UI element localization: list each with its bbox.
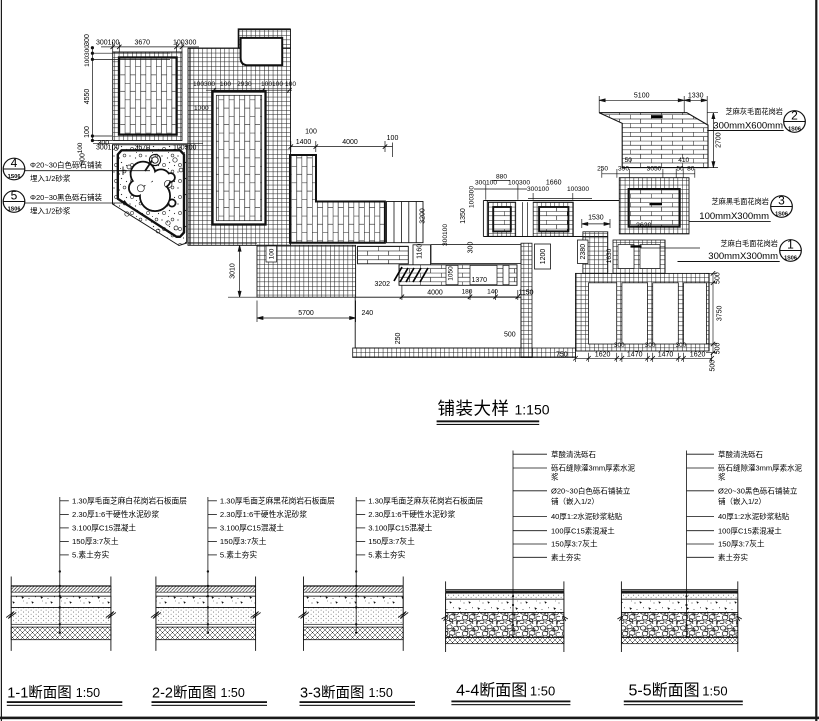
- svg-text:300: 300: [645, 342, 656, 349]
- svg-text:150厚3:7灰土: 150厚3:7灰土: [368, 536, 415, 546]
- svg-text:300100: 300100: [527, 186, 549, 193]
- svg-text:3670: 3670: [135, 145, 151, 152]
- svg-text:1S06: 1S06: [775, 211, 788, 217]
- svg-text:500: 500: [710, 360, 717, 372]
- svg-text:3-3断面图: 3-3断面图: [300, 685, 364, 702]
- svg-text:5.素土夯实: 5.素土夯实: [368, 550, 405, 560]
- svg-text:410: 410: [678, 157, 689, 164]
- svg-text:1000: 1000: [194, 105, 209, 112]
- svg-text:100300: 100300: [173, 145, 196, 152]
- svg-text:40厚1:2水泥砂浆粘贴: 40厚1:2水泥砂浆粘贴: [551, 511, 623, 521]
- svg-text:250: 250: [597, 166, 608, 173]
- svg-text:Ø20~30黑色砾石铺装立: Ø20~30黑色砾石铺装立: [718, 485, 798, 495]
- svg-text:1-1断面图: 1-1断面图: [7, 685, 71, 702]
- svg-text:240: 240: [362, 310, 374, 317]
- svg-text:5: 5: [11, 188, 18, 202]
- svg-text:2-2断面图: 2-2断面图: [152, 685, 216, 702]
- svg-text:80: 80: [687, 166, 695, 173]
- svg-text:300: 300: [614, 342, 625, 349]
- svg-text:100100: 100100: [261, 81, 283, 88]
- svg-text:4: 4: [11, 156, 18, 170]
- svg-text:砾石缝隙灌3mm厚素水泥: 砾石缝隙灌3mm厚素水泥: [718, 463, 803, 473]
- svg-text:芝麻灰毛面花岗岩: 芝麻灰毛面花岗岩: [725, 107, 783, 116]
- svg-text:3.100厚C15混凝土: 3.100厚C15混凝土: [368, 523, 432, 533]
- svg-text:500: 500: [715, 342, 722, 354]
- svg-text:埋入1/2砂浆: 埋入1/2砂浆: [30, 173, 71, 183]
- svg-text:100: 100: [305, 129, 317, 136]
- svg-text:草酸清洗砾石: 草酸清洗砾石: [718, 449, 763, 459]
- svg-text:1620: 1620: [690, 351, 706, 358]
- svg-text:Φ20~30白色砾石铺装: Φ20~30白色砾石铺装: [30, 160, 103, 170]
- svg-text:5700: 5700: [298, 310, 314, 317]
- svg-text:砾石缝隙灌3mm厚素水泥: 砾石缝隙灌3mm厚素水泥: [551, 463, 636, 473]
- svg-text:300mmX600mm: 300mmX600mm: [713, 120, 783, 131]
- svg-text:埋入1/2砂浆: 埋入1/2砂浆: [30, 205, 71, 215]
- svg-text:3.100厚C15混凝土: 3.100厚C15混凝土: [72, 523, 136, 533]
- svg-text:1350: 1350: [460, 208, 467, 224]
- svg-text:300100: 300100: [475, 180, 497, 187]
- svg-text:100300: 100300: [567, 186, 589, 193]
- svg-text:140: 140: [487, 289, 498, 296]
- svg-text:2.30厚1:6干硬性水泥砂浆: 2.30厚1:6干硬性水泥砂浆: [368, 509, 455, 519]
- svg-text:100300: 100300: [193, 81, 215, 88]
- svg-text:300: 300: [676, 342, 687, 349]
- svg-text:铺（嵌入1/2）: 铺（嵌入1/2）: [551, 496, 599, 506]
- svg-text:150厚3:7灰土: 150厚3:7灰土: [72, 536, 119, 546]
- svg-text:3670: 3670: [135, 39, 151, 46]
- svg-text:300: 300: [84, 34, 91, 46]
- svg-text:2: 2: [791, 108, 798, 122]
- svg-text:1470: 1470: [658, 351, 674, 358]
- svg-text:100: 100: [84, 126, 91, 138]
- svg-text:浆: 浆: [718, 472, 726, 482]
- svg-text:素土夯实: 素土夯实: [551, 552, 581, 562]
- svg-text:3202: 3202: [375, 281, 391, 288]
- svg-text:1:50: 1:50: [369, 686, 393, 700]
- svg-text:素土夯实: 素土夯实: [718, 552, 748, 562]
- svg-text:150厚3:7灰土: 150厚3:7灰土: [551, 539, 598, 549]
- svg-text:1S06: 1S06: [8, 174, 21, 180]
- svg-text:1200: 1200: [540, 249, 547, 265]
- svg-text:1050: 1050: [448, 266, 455, 281]
- svg-text:4000: 4000: [342, 139, 358, 146]
- svg-text:180: 180: [462, 289, 473, 296]
- svg-text:4000: 4000: [427, 289, 443, 296]
- svg-text:3.100厚C15混凝土: 3.100厚C15混凝土: [220, 523, 284, 533]
- svg-text:1160: 1160: [417, 244, 424, 259]
- svg-text:1:50: 1:50: [221, 686, 245, 700]
- svg-text:300mmX300mm: 300mmX300mm: [708, 251, 778, 262]
- svg-text:草酸清洗砾石: 草酸清洗砾石: [551, 449, 596, 459]
- svg-text:2700: 2700: [716, 132, 723, 148]
- svg-text:1S06: 1S06: [8, 206, 21, 212]
- svg-text:3750: 3750: [717, 306, 724, 322]
- svg-text:150厚3:7灰土: 150厚3:7灰土: [220, 536, 267, 546]
- svg-text:100: 100: [269, 248, 276, 259]
- svg-text:500: 500: [715, 272, 722, 284]
- svg-text:2.30厚1:6干硬性水泥砂浆: 2.30厚1:6干硬性水泥砂浆: [220, 509, 307, 519]
- svg-text:Φ20~30黑色砾石铺装: Φ20~30黑色砾石铺装: [30, 192, 103, 202]
- svg-text:1330: 1330: [688, 93, 704, 100]
- svg-text:1:50: 1:50: [702, 684, 727, 699]
- svg-text:1630: 1630: [606, 248, 613, 263]
- svg-text:390: 390: [618, 166, 629, 173]
- svg-text:芝麻黑毛面花岗岩: 芝麻黑毛面花岗岩: [711, 197, 769, 206]
- svg-text:1:50: 1:50: [530, 684, 555, 699]
- svg-text:1: 1: [787, 237, 794, 251]
- svg-text:40厚1:2水泥砂浆粘贴: 40厚1:2水泥砂浆粘贴: [718, 511, 790, 521]
- svg-text:100300: 100300: [173, 39, 196, 46]
- svg-text:300100: 300100: [96, 39, 119, 46]
- svg-text:2380: 2380: [580, 244, 587, 260]
- svg-text:880: 880: [496, 174, 507, 181]
- svg-text:5.素土夯实: 5.素土夯实: [72, 550, 109, 560]
- svg-text:50: 50: [625, 157, 633, 164]
- svg-text:5.素土夯实: 5.素土夯实: [220, 550, 257, 560]
- svg-text:1S06: 1S06: [784, 255, 797, 261]
- svg-text:1530: 1530: [588, 214, 604, 221]
- svg-text:1:50: 1:50: [76, 686, 100, 700]
- svg-text:1150: 1150: [519, 289, 534, 296]
- svg-text:浆: 浆: [551, 472, 559, 482]
- svg-text:4-4断面图: 4-4断面图: [456, 682, 527, 700]
- svg-text:150厚3:7灰土: 150厚3:7灰土: [718, 539, 765, 549]
- svg-text:300: 300: [468, 242, 475, 254]
- svg-text:4550: 4550: [84, 89, 91, 105]
- svg-text:铺（嵌入1/2）: 铺（嵌入1/2）: [718, 496, 766, 506]
- svg-text:2.30厚1:6干硬性水泥砂浆: 2.30厚1:6干硬性水泥砂浆: [72, 509, 159, 519]
- svg-text:100300: 100300: [469, 186, 476, 208]
- svg-text:3010: 3010: [230, 263, 237, 279]
- svg-text:1370: 1370: [472, 277, 488, 284]
- svg-text:100: 100: [220, 81, 231, 88]
- svg-text:100厚C15素混凝土: 100厚C15素混凝土: [718, 525, 782, 535]
- svg-text:1.30厚毛面芝麻白花岗岩石板面层: 1.30厚毛面芝麻白花岗岩石板面层: [72, 495, 187, 505]
- svg-text:3050: 3050: [647, 166, 662, 173]
- svg-text:500: 500: [504, 331, 516, 338]
- svg-text:2620: 2620: [636, 223, 652, 230]
- svg-text:1S06: 1S06: [788, 126, 801, 132]
- svg-text:2930: 2930: [237, 81, 252, 88]
- svg-text:Ø20~30白色砾石铺装立: Ø20~30白色砾石铺装立: [551, 485, 631, 495]
- svg-text:芝麻白毛面花岗岩: 芝麻白毛面花岗岩: [720, 239, 778, 248]
- svg-text:100: 100: [285, 81, 296, 88]
- svg-text:1.30厚毛面芝麻灰花岗岩石板面层: 1.30厚毛面芝麻灰花岗岩石板面层: [368, 495, 483, 505]
- svg-text:5-5断面图: 5-5断面图: [629, 682, 700, 700]
- svg-text:5100: 5100: [634, 93, 650, 100]
- svg-text:3: 3: [778, 193, 785, 207]
- svg-text:750: 750: [556, 351, 568, 358]
- svg-text:1470: 1470: [627, 351, 643, 358]
- svg-text:铺装大样: 铺装大样: [438, 399, 510, 419]
- svg-text:3200: 3200: [420, 208, 427, 224]
- svg-text:1.30厚毛面芝麻黑花岗岩石板面层: 1.30厚毛面芝麻黑花岗岩石板面层: [220, 495, 335, 505]
- svg-text:100mmX300mm: 100mmX300mm: [699, 211, 769, 222]
- svg-text:50: 50: [676, 166, 684, 173]
- svg-text:100: 100: [387, 135, 399, 142]
- svg-text:100300: 100300: [84, 45, 91, 67]
- svg-text:1:150: 1:150: [515, 402, 550, 418]
- svg-text:100: 100: [77, 142, 84, 153]
- svg-text:250: 250: [395, 332, 402, 344]
- svg-text:1400: 1400: [296, 139, 312, 146]
- svg-text:300: 300: [98, 140, 110, 147]
- svg-text:100厚C15素混凝土: 100厚C15素混凝土: [551, 525, 615, 535]
- svg-text:300100: 300100: [442, 224, 449, 246]
- svg-text:1620: 1620: [595, 351, 611, 358]
